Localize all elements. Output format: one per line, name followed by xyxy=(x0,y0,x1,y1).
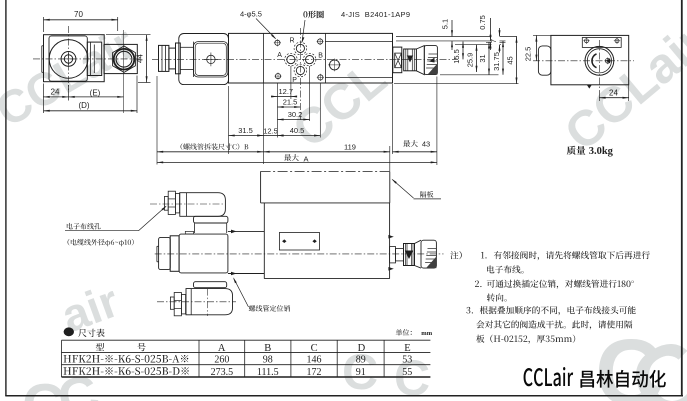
svg-text:70: 70 xyxy=(74,10,83,19)
svg-text:7: 7 xyxy=(489,39,498,43)
svg-text:119: 119 xyxy=(344,143,356,152)
svg-text:91: 91 xyxy=(356,367,366,378)
svg-text:A: A xyxy=(303,155,308,164)
svg-text:12.7: 12.7 xyxy=(278,87,293,96)
svg-text:0.75: 0.75 xyxy=(478,15,487,30)
svg-text:(E): (E) xyxy=(90,88,101,97)
svg-text:43: 43 xyxy=(422,139,430,148)
svg-text:44: 44 xyxy=(135,54,144,63)
svg-text:4-φ5.5: 4-φ5.5 xyxy=(240,10,262,19)
svg-text:45: 45 xyxy=(505,56,514,64)
svg-text:(D): (D) xyxy=(78,101,89,110)
svg-text:89: 89 xyxy=(356,355,366,366)
svg-text:273.5: 273.5 xyxy=(211,367,234,378)
svg-text:3.0kg: 3.0kg xyxy=(589,146,614,157)
svg-text:146: 146 xyxy=(307,355,322,366)
svg-text:A: A xyxy=(218,343,226,354)
svg-text:P: P xyxy=(292,77,297,84)
svg-text:21.5: 21.5 xyxy=(283,98,298,107)
svg-text:5.1: 5.1 xyxy=(440,19,449,29)
svg-text:B: B xyxy=(264,343,271,354)
svg-text:40.5: 40.5 xyxy=(290,126,305,135)
svg-text:C: C xyxy=(311,343,318,354)
svg-text:55: 55 xyxy=(402,367,412,378)
svg-text:A: A xyxy=(277,52,282,59)
svg-text:12.5: 12.5 xyxy=(263,127,278,136)
svg-text:22.5: 22.5 xyxy=(523,47,532,62)
svg-text:260: 260 xyxy=(214,355,229,366)
svg-text:172: 172 xyxy=(307,367,322,378)
svg-text:31: 31 xyxy=(478,54,487,62)
svg-text:25.9: 25.9 xyxy=(465,53,474,68)
svg-text:98: 98 xyxy=(263,355,273,366)
svg-text:24: 24 xyxy=(609,88,618,97)
svg-text:B: B xyxy=(318,52,323,59)
svg-text:4-JIS B2401-1AP9: 4-JIS B2401-1AP9 xyxy=(341,10,410,19)
svg-text:D: D xyxy=(358,343,366,354)
svg-text:R: R xyxy=(289,38,294,45)
svg-text:111.5: 111.5 xyxy=(257,367,279,378)
svg-text:30.2: 30.2 xyxy=(288,110,303,119)
svg-text:E: E xyxy=(404,343,410,354)
svg-text:31.75: 31.75 xyxy=(492,52,501,71)
svg-text:31.5: 31.5 xyxy=(238,126,253,135)
svg-text:15.5: 15.5 xyxy=(452,49,461,64)
svg-text:24: 24 xyxy=(51,88,60,97)
svg-text:53: 53 xyxy=(402,355,412,366)
svg-text:mm: mm xyxy=(421,330,432,337)
